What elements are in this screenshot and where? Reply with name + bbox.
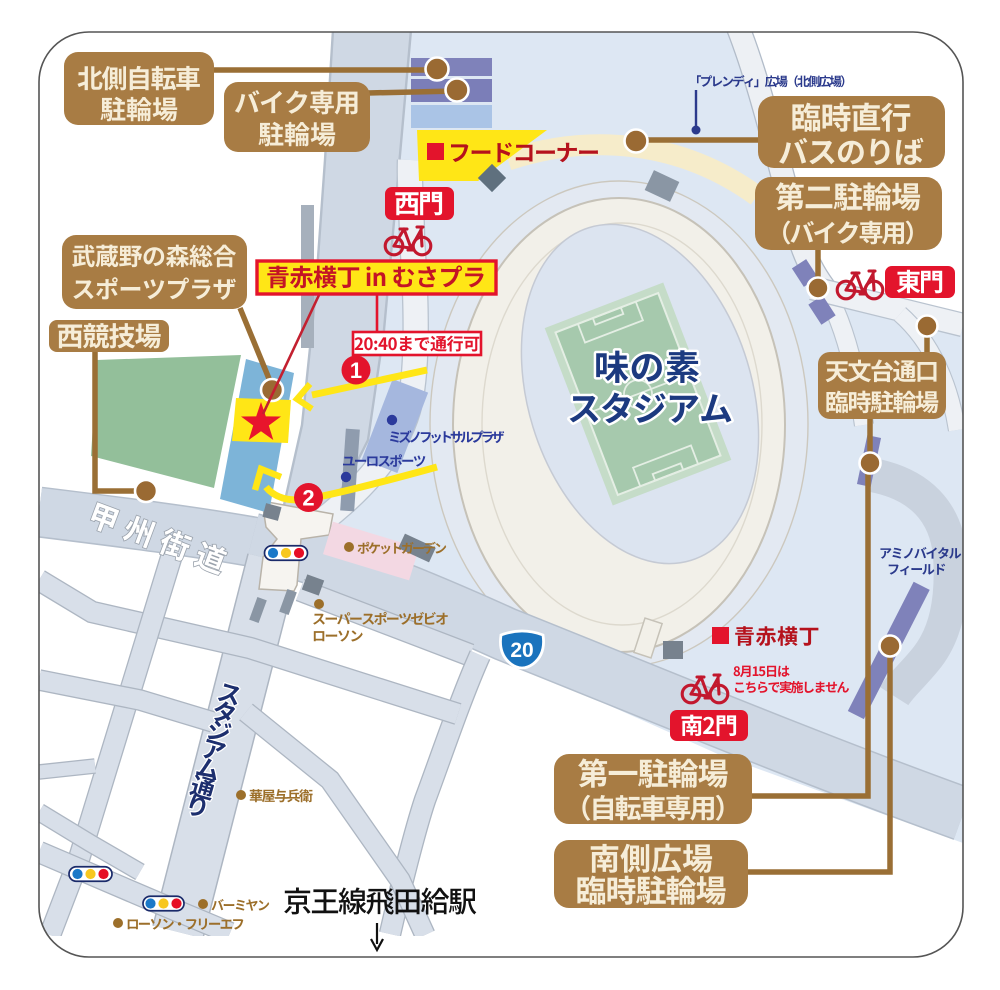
svg-text:1: 1 (350, 358, 362, 383)
svg-text:2: 2 (302, 486, 314, 511)
svg-text:20: 20 (510, 639, 533, 662)
